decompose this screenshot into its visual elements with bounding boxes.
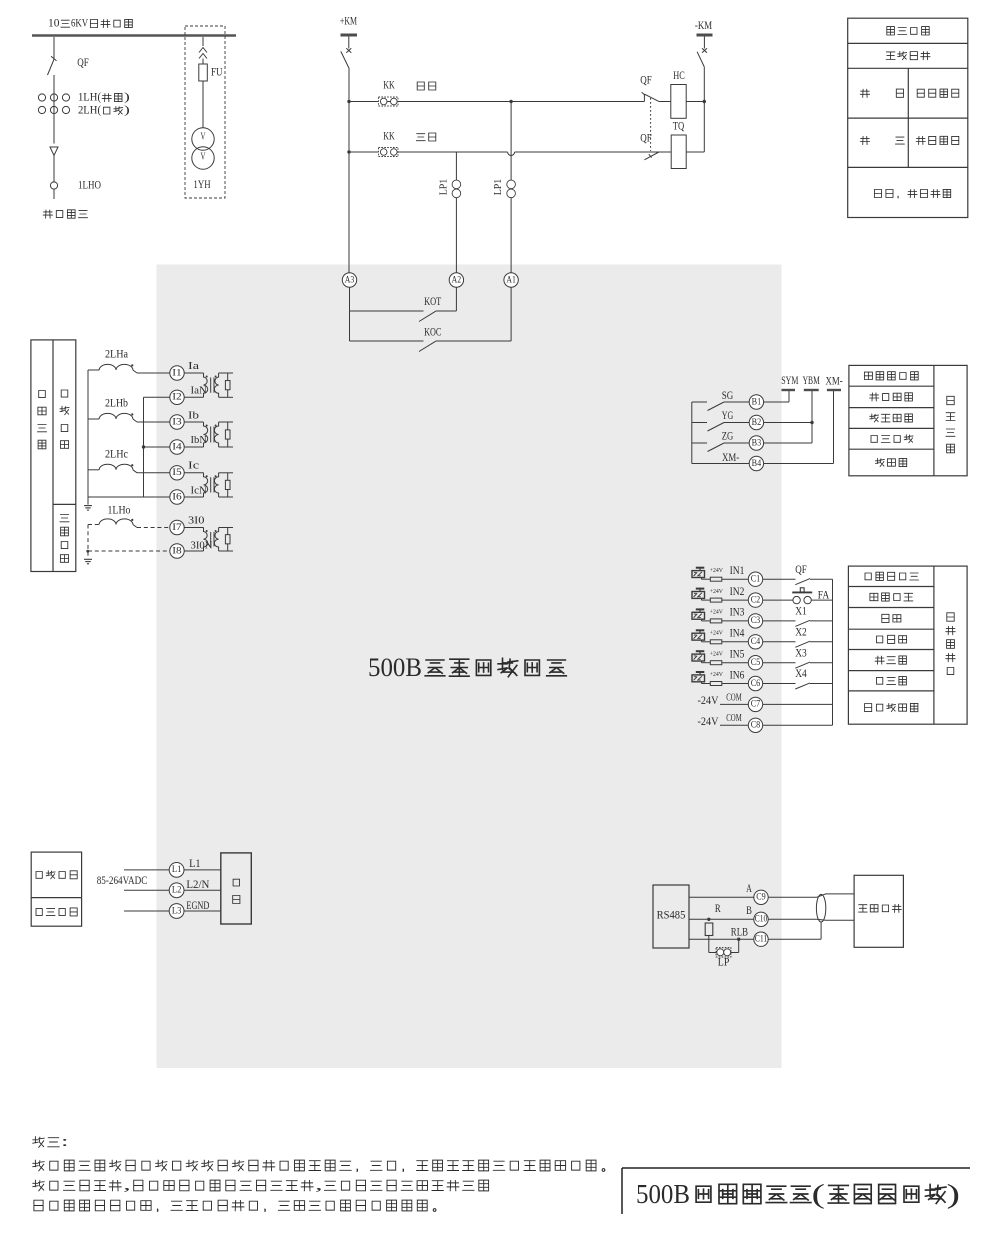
svg-text:C10: C10: [755, 915, 768, 925]
svg-text:2LHb: 2LHb: [105, 398, 128, 410]
svg-text:Ic: Ic: [188, 460, 199, 472]
svg-text:B2: B2: [752, 418, 762, 428]
svg-text:KK: KK: [383, 131, 395, 143]
svg-text:QF: QF: [77, 57, 89, 69]
svg-text:LP1: LP1: [438, 179, 450, 196]
svg-text:I7: I7: [172, 523, 182, 533]
svg-text:IN6: IN6: [730, 669, 745, 681]
svg-text:X4: X4: [795, 668, 807, 680]
svg-text:3I0N: 3I0N: [191, 540, 213, 552]
svg-text:LP1: LP1: [492, 179, 504, 196]
svg-text:500B: 500B: [368, 653, 422, 682]
svg-text::: :: [61, 1134, 69, 1150]
svg-text:B3: B3: [752, 438, 762, 448]
svg-text:I6: I6: [172, 492, 182, 502]
svg-text:2LHc: 2LHc: [105, 449, 128, 461]
svg-text:1LHO: 1LHO: [78, 180, 101, 192]
svg-text:I8: I8: [172, 546, 182, 556]
svg-text:XM-: XM-: [722, 452, 739, 464]
svg-text:500B: 500B: [636, 1179, 690, 1209]
svg-text:L3: L3: [172, 906, 182, 916]
svg-text:COM: COM: [726, 692, 742, 703]
svg-text:B: B: [746, 905, 752, 917]
svg-text:IN4: IN4: [730, 628, 745, 640]
svg-text:COM: COM: [726, 713, 742, 724]
svg-text:ZG: ZG: [722, 431, 734, 443]
svg-text:3I0: 3I0: [188, 515, 205, 527]
svg-text:XM-: XM-: [826, 376, 843, 388]
svg-text:I4: I4: [172, 442, 182, 452]
svg-text:QF: QF: [640, 133, 652, 145]
svg-text:SG: SG: [722, 390, 734, 402]
svg-text:V: V: [201, 152, 207, 163]
svg-text:L1: L1: [189, 858, 201, 870]
svg-text:C8: C8: [751, 721, 761, 731]
svg-text:+KM: +KM: [340, 16, 357, 28]
svg-text:+24V: +24V: [710, 630, 723, 637]
svg-text:IN5: IN5: [730, 649, 745, 661]
svg-text:+24V: +24V: [710, 588, 723, 595]
svg-text:YG: YG: [722, 410, 734, 422]
svg-text:LP: LP: [718, 957, 730, 969]
svg-text:10: 10: [48, 18, 60, 30]
svg-text:B1: B1: [752, 397, 762, 407]
svg-text:I2: I2: [172, 393, 182, 403]
svg-text:QF: QF: [795, 564, 807, 576]
svg-text:X3: X3: [795, 647, 807, 659]
svg-text:L1: L1: [172, 865, 182, 875]
svg-text:EGND: EGND: [186, 900, 209, 912]
svg-text:A3: A3: [345, 275, 355, 285]
svg-text:RS485: RS485: [657, 910, 686, 922]
svg-text:): ): [124, 105, 130, 117]
svg-text:B4: B4: [752, 459, 762, 469]
svg-text:C6: C6: [751, 679, 761, 689]
svg-text:A2: A2: [452, 275, 462, 285]
svg-text:-24V: -24V: [698, 695, 720, 707]
svg-text:L2: L2: [172, 886, 182, 896]
svg-text:-KM: -KM: [695, 20, 712, 32]
svg-text:Ia: Ia: [188, 360, 199, 372]
svg-text:-24V: -24V: [698, 716, 720, 728]
svg-text:I3: I3: [172, 417, 182, 427]
svg-text:TQ: TQ: [673, 121, 685, 133]
svg-text:KOT: KOT: [424, 296, 441, 308]
svg-text:HC: HC: [673, 70, 685, 82]
svg-text:,: ,: [315, 1178, 323, 1194]
svg-text:KK: KK: [383, 80, 395, 92]
svg-text:C11: C11: [755, 935, 768, 945]
svg-text:X2: X2: [795, 627, 807, 639]
svg-text:FA: FA: [818, 590, 830, 602]
svg-text:): ): [124, 92, 130, 104]
svg-text:YBM: YBM: [803, 375, 820, 387]
svg-text:A: A: [746, 883, 752, 895]
svg-text:(: (: [812, 1179, 826, 1209]
svg-text:1LHo: 1LHo: [108, 505, 131, 517]
svg-text:IaN: IaN: [191, 384, 208, 396]
svg-text:): ): [947, 1179, 961, 1209]
svg-text:IbN: IbN: [191, 434, 208, 446]
svg-text:C3: C3: [751, 616, 761, 626]
svg-text:SYM: SYM: [781, 375, 798, 387]
svg-text:RLB: RLB: [731, 926, 748, 938]
svg-text:R: R: [715, 903, 721, 915]
svg-text:C1: C1: [751, 575, 761, 585]
svg-text:C9: C9: [756, 893, 766, 903]
svg-text:IN3: IN3: [730, 607, 745, 619]
svg-text:1YH: 1YH: [193, 179, 210, 191]
svg-text:Ib: Ib: [188, 410, 200, 422]
svg-text:C4: C4: [751, 637, 761, 647]
svg-text:+24V: +24V: [710, 650, 723, 657]
svg-text:I5: I5: [172, 468, 182, 478]
svg-text:A1: A1: [506, 275, 516, 285]
svg-text:V: V: [201, 132, 207, 143]
svg-text:C2: C2: [751, 595, 761, 605]
svg-text:C7: C7: [751, 700, 761, 710]
svg-text:L2/N: L2/N: [186, 879, 210, 891]
svg-text:KOC: KOC: [424, 327, 441, 339]
svg-text:+24V: +24V: [710, 609, 723, 616]
svg-text:IN1: IN1: [730, 565, 745, 577]
svg-text:1LH(: 1LH(: [78, 92, 101, 104]
svg-text:+24V: +24V: [710, 671, 723, 678]
svg-text:C5: C5: [751, 658, 761, 668]
svg-text:IN2: IN2: [730, 586, 745, 598]
svg-text:2LH(: 2LH(: [78, 105, 101, 117]
svg-text:I1: I1: [172, 368, 182, 378]
svg-text:+24V: +24V: [710, 567, 723, 574]
svg-text:IcN: IcN: [191, 485, 208, 497]
svg-text:6KV: 6KV: [71, 18, 89, 30]
svg-text:FU: FU: [211, 67, 223, 79]
svg-text:X1: X1: [795, 606, 807, 618]
svg-text:QF: QF: [640, 75, 652, 87]
svg-text:85-264VADC: 85-264VADC: [97, 875, 148, 887]
svg-text:,: ,: [123, 1178, 131, 1194]
svg-text:2LHa: 2LHa: [105, 349, 128, 361]
